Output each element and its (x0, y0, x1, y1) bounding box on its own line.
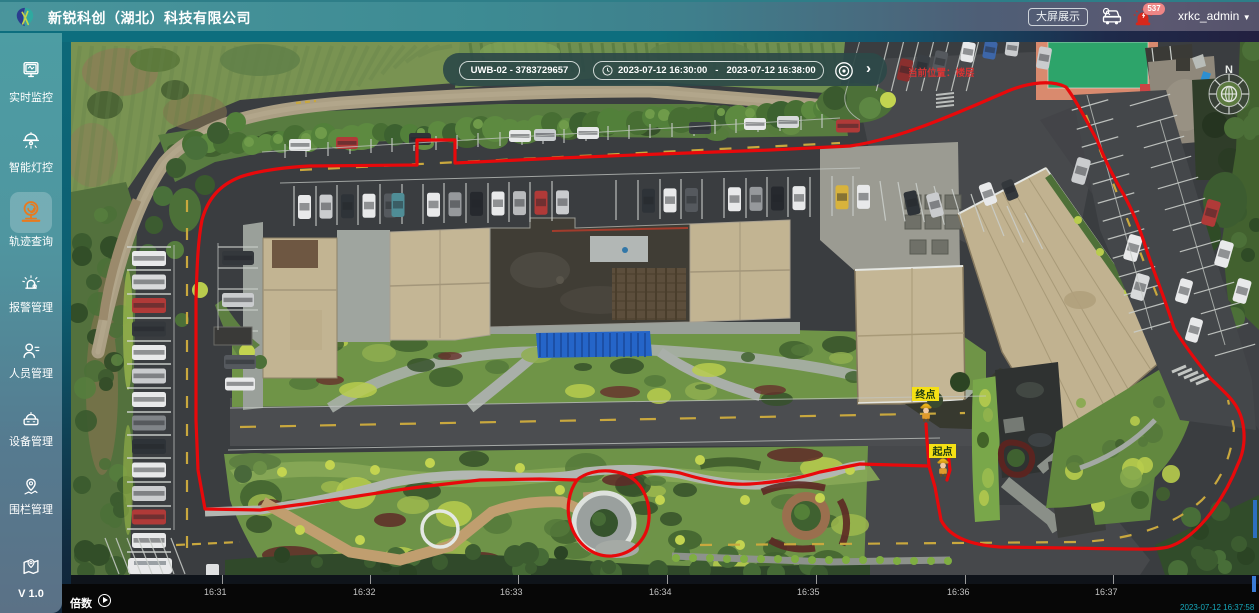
svg-text:终点: 终点 (916, 388, 936, 401)
svg-text:当前位置：楼层: 当前位置：楼层 (908, 67, 975, 79)
svg-text:起点: 起点 (932, 445, 953, 458)
